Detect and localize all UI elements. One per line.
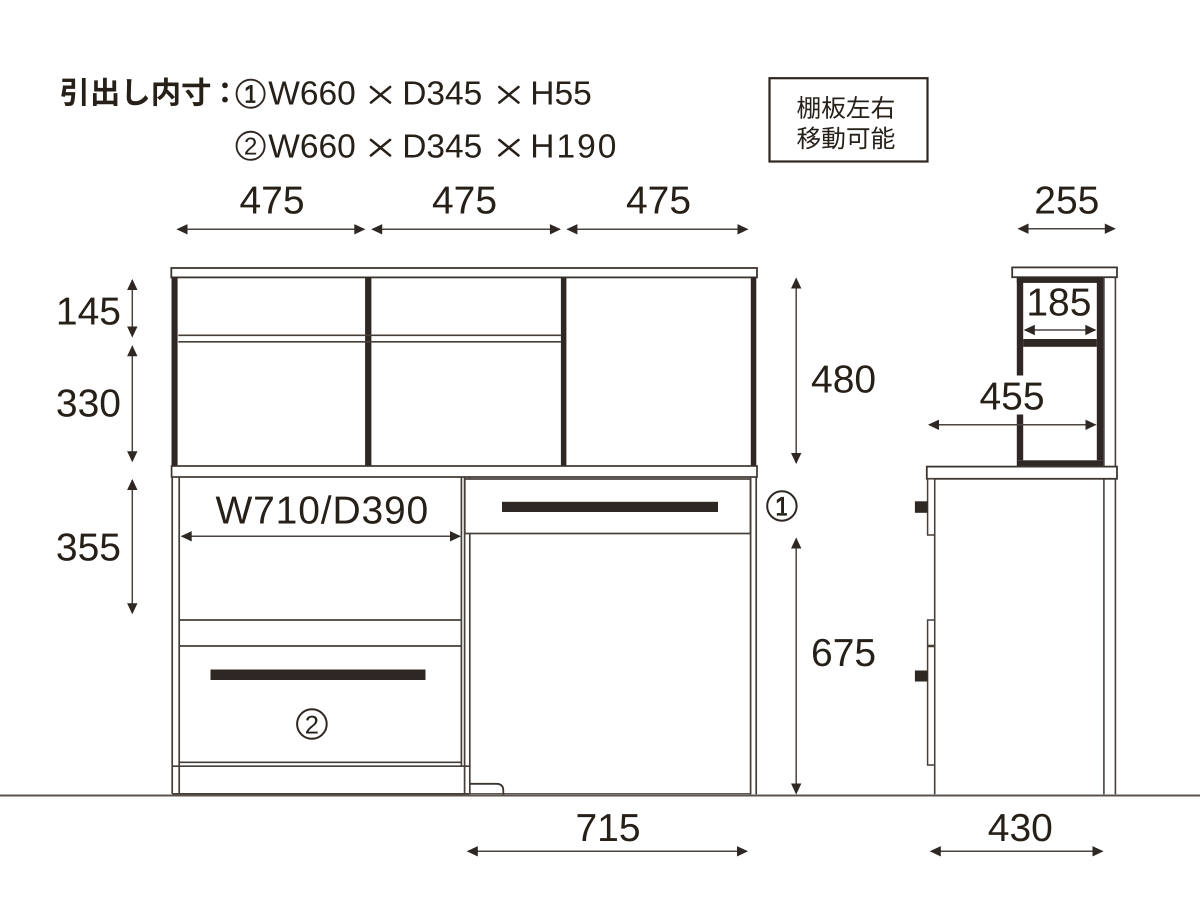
svg-text:455: 455	[979, 376, 1044, 419]
svg-text:H55: H55	[530, 76, 591, 113]
svg-text:475: 475	[626, 180, 691, 223]
svg-text:D345: D345	[402, 76, 482, 113]
svg-text:2: 2	[305, 711, 319, 739]
svg-text:675: 675	[811, 632, 876, 675]
svg-text:W660: W660	[268, 76, 356, 113]
svg-text:W710/D390: W710/D390	[215, 490, 429, 533]
svg-text:480: 480	[811, 358, 876, 401]
svg-text:430: 430	[988, 807, 1053, 850]
svg-text:715: 715	[575, 807, 640, 850]
svg-text:185: 185	[1026, 281, 1091, 324]
svg-text:2: 2	[244, 134, 258, 161]
svg-text:475: 475	[239, 180, 304, 223]
svg-text:145: 145	[56, 291, 121, 334]
svg-text:H190: H190	[530, 129, 618, 166]
svg-text:W660: W660	[268, 129, 356, 166]
svg-text:D345: D345	[402, 129, 482, 166]
svg-text:475: 475	[432, 180, 497, 223]
svg-text:330: 330	[56, 383, 121, 426]
svg-text:355: 355	[56, 527, 121, 570]
svg-text:255: 255	[1034, 180, 1099, 223]
